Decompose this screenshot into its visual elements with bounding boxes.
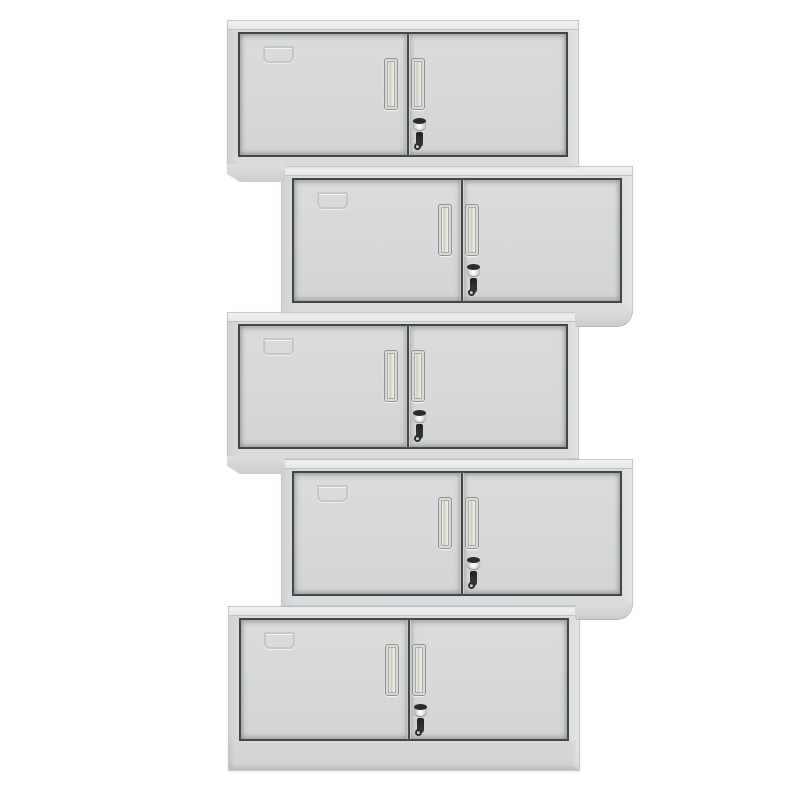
cabinet-2 (281, 166, 633, 313)
door-frame (292, 471, 622, 596)
left-foot (227, 164, 285, 182)
door-frame (238, 324, 568, 449)
cabinet-1 (227, 20, 579, 167)
left-door (241, 620, 408, 739)
cabinet-top-panel (228, 313, 578, 322)
cabinet-5 (228, 606, 580, 771)
product-photo-canvas (0, 0, 800, 800)
left-door (294, 473, 461, 594)
door-gap (408, 620, 410, 739)
key-ring-icon (414, 435, 421, 442)
right-door (410, 620, 567, 739)
cabinet-top-panel (282, 167, 632, 176)
label-card-holder (317, 192, 348, 209)
right-door (463, 180, 620, 301)
key-ring-icon (468, 582, 475, 589)
left-door (294, 180, 461, 301)
cam-lock-icon (413, 411, 426, 422)
right-foot (575, 603, 633, 620)
right-door-handle (412, 644, 426, 696)
door-gap (407, 34, 409, 155)
left-door-handle (384, 350, 398, 402)
cam-lock-icon (413, 119, 426, 130)
label-card-holder (264, 632, 295, 649)
hanging-key-icon (470, 571, 477, 586)
right-foot (575, 310, 633, 327)
cam-lock-icon (414, 705, 427, 716)
right-door (409, 326, 566, 447)
key-ring-icon (414, 143, 421, 150)
hanging-key-icon (416, 424, 423, 439)
cabinet-top-panel (282, 460, 632, 469)
door-gap (461, 180, 463, 301)
cam-lock-icon (467, 265, 480, 276)
right-door-handle (465, 204, 479, 256)
key-ring-icon (468, 289, 475, 296)
left-door-handle (385, 644, 399, 696)
door-gap (461, 473, 463, 594)
right-door (409, 34, 566, 155)
left-door (240, 34, 407, 155)
key-ring-icon (415, 729, 422, 736)
door-gap (407, 326, 409, 447)
hanging-key-icon (470, 278, 477, 293)
label-card-holder (317, 485, 348, 502)
right-door (463, 473, 620, 594)
left-door (240, 326, 407, 447)
cabinet-top-panel (229, 607, 579, 616)
right-door-handle (411, 350, 425, 402)
left-door-handle (438, 497, 452, 549)
door-frame (239, 618, 569, 741)
cabinet-3 (227, 312, 579, 459)
label-card-holder (263, 338, 294, 355)
left-foot (227, 456, 285, 474)
left-door-handle (384, 58, 398, 110)
hanging-key-icon (417, 718, 424, 733)
cabinet-4 (281, 459, 633, 606)
door-frame (292, 178, 622, 303)
door-frame (238, 32, 568, 157)
cam-lock-icon (467, 558, 480, 569)
base-plinth (229, 741, 579, 770)
right-door-handle (465, 497, 479, 549)
left-door-handle (438, 204, 452, 256)
right-door-handle (411, 58, 425, 110)
hanging-key-icon (416, 132, 423, 147)
cabinet-top-panel (228, 21, 578, 30)
label-card-holder (263, 46, 294, 63)
